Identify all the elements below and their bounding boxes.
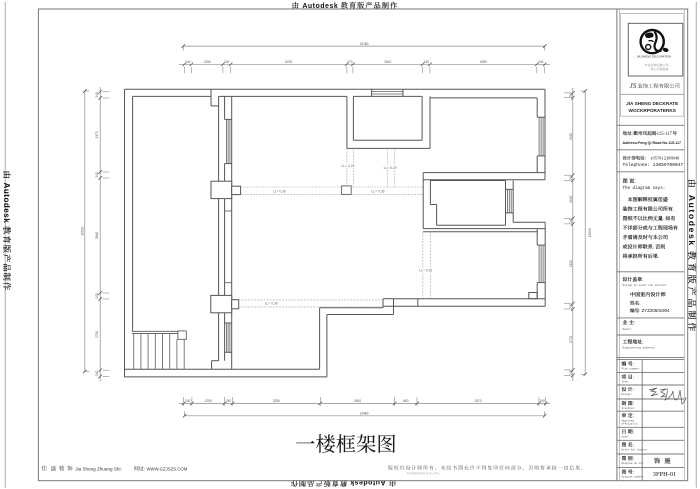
svg-text:3170: 3170: [95, 131, 99, 138]
svg-text:860: 860: [403, 399, 409, 403]
svg-text:Autodesk: Autodesk: [687, 195, 697, 247]
svg-text:270: 270: [347, 60, 353, 64]
svg-text:3640: 3640: [95, 232, 99, 239]
svg-text:240: 240: [95, 92, 99, 98]
svg-text::: :: [632, 132, 633, 137]
svg-text:Item:: Item:: [622, 381, 630, 384]
svg-text:115-117: 115-117: [657, 132, 673, 137]
svg-text:4000: 4000: [480, 60, 487, 64]
svg-text:240: 240: [424, 60, 430, 64]
svg-text:: ZYZ20501904: : ZYZ20501904: [639, 308, 670, 313]
svg-text:(0570) 2388048: (0570) 2388048: [651, 156, 680, 161]
svg-text::: :: [633, 388, 634, 393]
svg-text:Jia Sheng Zhuang Shi:: Jia Sheng Zhuang Shi:: [75, 466, 121, 471]
svg-text:240: 240: [185, 399, 191, 403]
svg-text:LL= 0.26: LL= 0.26: [419, 269, 432, 273]
svg-text:1570: 1570: [474, 399, 481, 403]
svg-text:.: .: [663, 217, 664, 222]
svg-text:JIA SHENG DECKRATE: JIA SHENG DECKRATE: [626, 101, 678, 106]
svg-text:WOCKRPORATERKS: WOCKRPORATERKS: [629, 108, 676, 113]
svg-text::: :: [639, 301, 640, 306]
svg-text:13480: 13480: [360, 411, 369, 415]
svg-text:Design to cover the charter:: Design to cover the charter:: [623, 283, 668, 287]
svg-text:240: 240: [224, 60, 230, 64]
svg-text:Plan number:: Plan number:: [622, 366, 641, 370]
svg-text:LL= 0.39: LL= 0.39: [265, 301, 278, 305]
svg-text:240: 240: [226, 399, 232, 403]
svg-text:3250: 3250: [273, 399, 280, 403]
svg-text:JS: JS: [630, 82, 637, 90]
svg-text:240: 240: [185, 60, 191, 64]
svg-text:240: 240: [538, 60, 544, 64]
svg-text:.: .: [658, 255, 659, 260]
svg-text:Diagram number:: Diagram number:: [622, 475, 645, 479]
svg-text:6220: 6220: [285, 60, 292, 64]
svg-text:2710: 2710: [95, 331, 99, 338]
svg-text:240: 240: [569, 175, 573, 181]
svg-text::: :: [634, 179, 635, 185]
svg-text:Design:: Design:: [622, 392, 633, 396]
svg-text:Owner:: Owner:: [623, 328, 633, 331]
svg-text:LL= 0.29: LL= 0.29: [384, 166, 397, 170]
svg-text:Autodesk: Autodesk: [350, 479, 386, 486]
svg-text::: :: [642, 340, 643, 345]
svg-text:2920: 2920: [569, 133, 573, 140]
svg-text:Engineering address:: Engineering address:: [623, 346, 657, 350]
svg-text:Autodesk: Autodesk: [2, 183, 11, 224]
svg-text:JIA SHENG DECORATION: JIA SHENG DECORATION: [636, 55, 671, 59]
svg-text:240: 240: [569, 370, 573, 376]
svg-text:240: 240: [95, 172, 99, 178]
svg-text:Graphics:: Graphics:: [622, 406, 636, 410]
svg-text::: :: [633, 376, 634, 381]
svg-text::: :: [144, 466, 145, 471]
svg-text:Address:Feng Qi Road No.115-11: Address:Feng Qi Road No.115-117: [623, 141, 682, 145]
svg-text:3FPH-01: 3FPH-01: [653, 471, 676, 478]
svg-text:240: 240: [540, 399, 546, 403]
svg-text:officially:: officially:: [622, 421, 639, 425]
svg-text:.: .: [673, 208, 674, 213]
svg-text:LL= 0.36: LL= 0.36: [372, 189, 385, 193]
svg-text:2610: 2610: [384, 60, 391, 64]
svg-text:Telephone: 13059700047: Telephone: 13059700047: [623, 162, 684, 168]
svg-text:240: 240: [95, 293, 99, 299]
svg-text:240: 240: [95, 370, 99, 376]
svg-text:240: 240: [569, 303, 573, 309]
svg-text:The diagram says:: The diagram says:: [623, 186, 666, 191]
svg-text:13180: 13180: [360, 42, 369, 46]
svg-text::: :: [634, 320, 635, 326]
svg-text::: :: [633, 430, 634, 435]
svg-text:13090: 13090: [588, 228, 592, 237]
svg-text:Diagram do not:: Diagram do not:: [622, 461, 645, 465]
svg-text:1770: 1770: [569, 336, 573, 343]
svg-text:1520: 1520: [569, 196, 573, 203]
svg-text:2120: 2120: [569, 260, 573, 267]
svg-text:2600: 2600: [354, 399, 361, 403]
svg-text:Date:: Date:: [622, 435, 630, 438]
svg-text::: :: [642, 278, 643, 283]
svg-text:240: 240: [569, 92, 573, 98]
svg-text:LL= 0.29: LL= 0.29: [342, 164, 355, 168]
svg-text:1250: 1250: [205, 399, 212, 403]
svg-text:WWW.GZJSZS.COM: WWW.GZJSZS.COM: [147, 466, 188, 471]
svg-text:.: .: [653, 245, 654, 250]
svg-text:1250: 1250: [204, 60, 211, 64]
svg-text:10590: 10590: [80, 227, 84, 236]
svg-text:240: 240: [569, 218, 573, 224]
svg-text:Write for figure:: Write for figure:: [622, 447, 648, 451]
svg-text:LL= 0.36: LL= 0.36: [273, 189, 286, 193]
